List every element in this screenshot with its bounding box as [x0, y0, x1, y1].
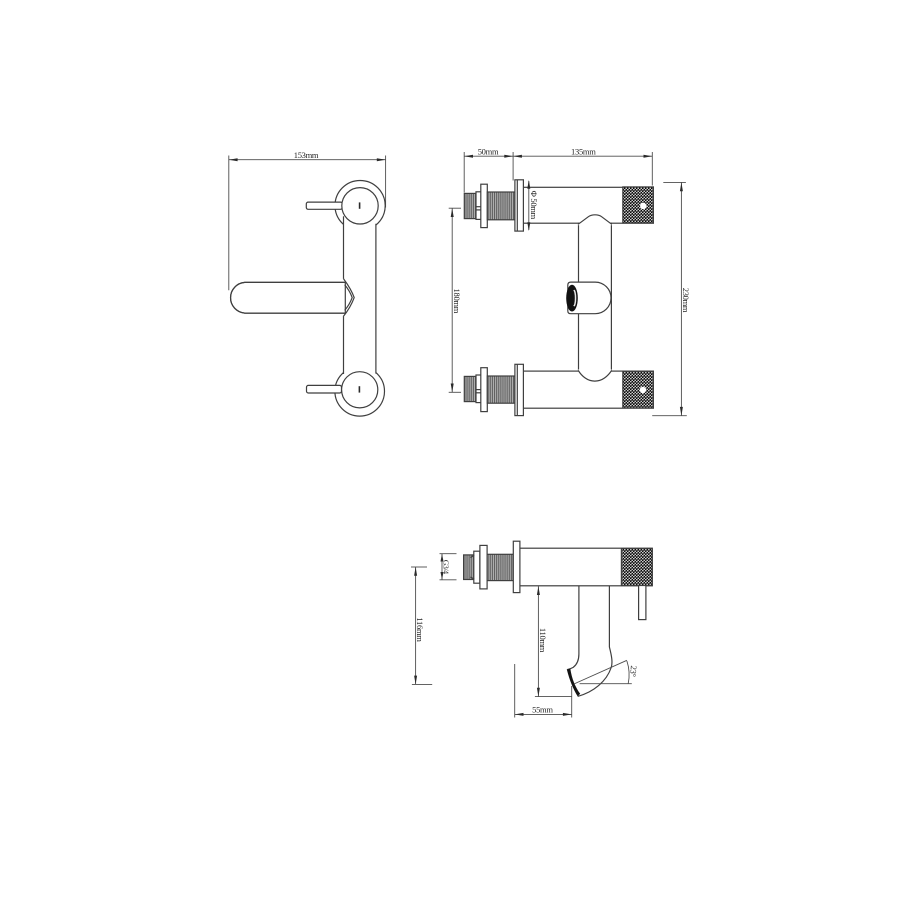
svg-text:116mm: 116mm — [415, 617, 425, 642]
svg-text:Φ 50mm: Φ 50mm — [529, 191, 539, 220]
svg-text:55mm: 55mm — [532, 704, 553, 714]
svg-text:50mm: 50mm — [478, 147, 499, 157]
svg-text:G3/4: G3/4 — [442, 560, 451, 574]
svg-text:230mm: 230mm — [681, 288, 691, 313]
svg-text:110mm: 110mm — [538, 628, 548, 653]
svg-text:153mm: 153mm — [294, 150, 319, 160]
svg-text:135mm: 135mm — [571, 147, 596, 157]
svg-text:23°: 23° — [628, 665, 639, 677]
svg-text:180mm: 180mm — [452, 289, 462, 314]
